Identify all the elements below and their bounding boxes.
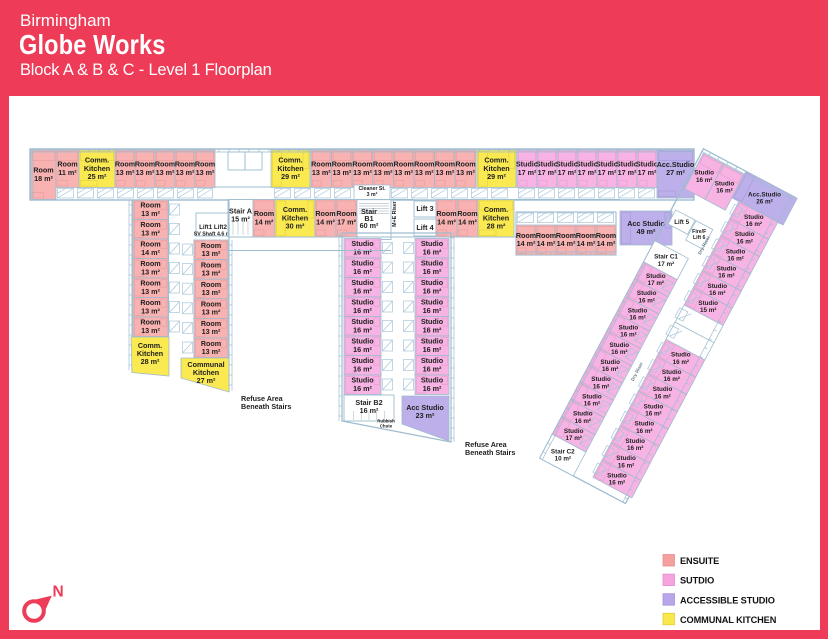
svg-text:Studio16 m²: Studio16 m² (628, 307, 648, 321)
svg-text:Studio16 m²: Studio16 m² (619, 324, 639, 338)
svg-text:Studio16 m²: Studio16 m² (351, 337, 374, 354)
svg-text:Room13 m²: Room13 m² (435, 160, 455, 177)
svg-text:Studio16 m²: Studio16 m² (351, 356, 374, 373)
svg-text:Room13 m²: Room13 m² (135, 160, 155, 177)
svg-text:Studio16 m²: Studio16 m² (616, 455, 636, 469)
svg-text:Room13 m²: Room13 m² (352, 160, 372, 177)
svg-text:Studio17 m²: Studio17 m² (646, 272, 666, 286)
svg-text:Studio16 m²: Studio16 m² (726, 248, 746, 262)
svg-text:Room14 m²: Room14 m² (596, 231, 616, 248)
svg-text:Studio15 m²: Studio15 m² (698, 300, 718, 314)
svg-text:Room13 m²: Room13 m² (201, 300, 221, 317)
svg-text:Room13 m²: Room13 m² (332, 160, 352, 177)
svg-text:Studio16 m²: Studio16 m² (573, 410, 593, 424)
svg-text:Studio16 m²: Studio16 m² (644, 403, 664, 417)
svg-text:Studio16 m²: Studio16 m² (600, 359, 620, 373)
svg-text:Studio16 m²: Studio16 m² (421, 298, 444, 315)
svg-text:Studio16 m²: Studio16 m² (351, 376, 374, 393)
svg-text:Room13 m²: Room13 m² (115, 160, 135, 177)
svg-text:Studio16 m²: Studio16 m² (421, 317, 444, 334)
svg-text:Studio16 m²: Studio16 m² (351, 317, 374, 334)
svg-text:M+E Riser: M+E Riser (392, 201, 398, 227)
svg-text:Room14 m²: Room14 m² (436, 209, 456, 226)
svg-text:Studio16 m²: Studio16 m² (635, 420, 655, 434)
svg-text:Studio16 m²: Studio16 m² (717, 265, 737, 279)
svg-text:Room14 m²: Room14 m² (516, 231, 536, 248)
svg-text:Studio16 m²: Studio16 m² (708, 282, 728, 296)
svg-text:Studio16 m²: Studio16 m² (421, 337, 444, 354)
svg-text:Studio16 m²: Studio16 m² (653, 386, 673, 400)
svg-text:ENSUITE: ENSUITE (680, 556, 719, 566)
svg-text:Lift 5: Lift 5 (674, 219, 689, 226)
svg-text:Refuse AreaBeneath Stairs: Refuse AreaBeneath Stairs (241, 394, 291, 411)
svg-text:Studio16 m²: Studio16 m² (610, 341, 630, 355)
svg-text:Room13 m²: Room13 m² (311, 160, 331, 177)
svg-text:Room14 m²: Room14 m² (254, 209, 274, 226)
svg-text:Studio16 m²: Studio16 m² (591, 376, 611, 390)
svg-text:Lift1 Lift2: Lift1 Lift2 (199, 224, 227, 231)
svg-text:Studio16 m²: Studio16 m² (421, 278, 444, 295)
svg-text:Comm.Kitchen28 m²: Comm.Kitchen28 m² (483, 205, 509, 230)
svg-text:Room13 m²: Room13 m² (140, 298, 160, 315)
svg-text:Room13 m²: Room13 m² (155, 160, 175, 177)
svg-text:Studio16 m²: Studio16 m² (662, 369, 682, 383)
svg-text:Studio16 m²: Studio16 m² (351, 259, 374, 276)
svg-text:Studio16 m²: Studio16 m² (421, 259, 444, 276)
svg-text:RubbishChute: RubbishChute (377, 419, 395, 429)
svg-text:Room13 m²: Room13 m² (140, 259, 160, 276)
svg-text:Room14 m²: Room14 m² (457, 209, 477, 226)
svg-text:Room14 m²: Room14 m² (315, 209, 335, 226)
svg-text:Stair A15 m²: Stair A15 m² (229, 206, 252, 223)
svg-text:Room13 m²: Room13 m² (195, 160, 215, 177)
svg-text:Room13 m²: Room13 m² (140, 318, 160, 335)
svg-text:Studio16 m²: Studio16 m² (351, 298, 374, 315)
svg-text:Comm.Kitchen30 m²: Comm.Kitchen30 m² (282, 205, 308, 230)
svg-text:Comm.Kitchen25 m²: Comm.Kitchen25 m² (84, 156, 110, 181)
svg-text:Studio16 m²: Studio16 m² (607, 472, 627, 486)
svg-text:Comm.Kitchen29 m²: Comm.Kitchen29 m² (483, 156, 509, 181)
svg-text:Room13 m²: Room13 m² (140, 279, 160, 296)
svg-text:Studio16 m²: Studio16 m² (625, 438, 645, 452)
svg-text:Comm.Kitchen28 m²: Comm.Kitchen28 m² (137, 341, 163, 366)
svg-text:Room11 m²: Room11 m² (57, 160, 77, 177)
svg-text:Room13 m²: Room13 m² (140, 220, 160, 237)
svg-text:Room17 m²: Room17 m² (336, 209, 356, 226)
svg-text:Room13 m²: Room13 m² (201, 319, 221, 336)
svg-text:Studio16 m²: Studio16 m² (671, 351, 691, 365)
svg-text:Room13 m²: Room13 m² (140, 201, 160, 218)
svg-text:Room13 m²: Room13 m² (201, 241, 221, 258)
svg-text:Lift 3: Lift 3 (416, 204, 433, 213)
svg-text:Room13 m²: Room13 m² (373, 160, 393, 177)
svg-text:Lift 4: Lift 4 (416, 223, 433, 232)
svg-text:Studio16 m²: Studio16 m² (351, 239, 374, 256)
svg-text:Room18 m²: Room18 m² (33, 166, 53, 183)
svg-text:Room13 m²: Room13 m² (201, 339, 221, 356)
svg-text:Studio16 m²: Studio16 m² (735, 231, 755, 245)
svg-text:Studio16 m²: Studio16 m² (694, 169, 714, 183)
svg-text:Room14 m²: Room14 m² (556, 231, 576, 248)
svg-text:Room14 m²: Room14 m² (536, 231, 556, 248)
svg-text:Studio16 m²: Studio16 m² (421, 239, 444, 256)
svg-text:Room14 m²: Room14 m² (140, 240, 160, 257)
svg-text:Studio16 m²: Studio16 m² (637, 290, 657, 304)
svg-text:Room14 m²: Room14 m² (576, 231, 596, 248)
svg-text:Comm.Kitchen29 m²: Comm.Kitchen29 m² (277, 156, 303, 181)
svg-text:Studio16 m²: Studio16 m² (744, 213, 764, 227)
svg-text:Room13 m²: Room13 m² (201, 260, 221, 277)
svg-text:COMMUNAL KITCHEN: COMMUNAL KITCHEN (680, 615, 777, 625)
svg-text:SUTDIO: SUTDIO (680, 576, 714, 586)
svg-text:Studio17 m²: Studio17 m² (636, 160, 659, 177)
svg-text:Studio16 m²: Studio16 m² (715, 180, 735, 194)
svg-text:Studio16 m²: Studio16 m² (421, 376, 444, 393)
svg-text:SV Shaft 4.6 m²: SV Shaft 4.6 m² (194, 232, 233, 238)
svg-text:Room13 m²: Room13 m² (414, 160, 434, 177)
svg-text:Room13 m²: Room13 m² (455, 160, 475, 177)
svg-text:N: N (53, 584, 64, 601)
svg-text:Studio17 m²: Studio17 m² (564, 428, 584, 442)
svg-text:Room13 m²: Room13 m² (175, 160, 195, 177)
svg-text:ACCESSIBLE STUDIO: ACCESSIBLE STUDIO (680, 595, 775, 605)
svg-text:Studio16 m²: Studio16 m² (582, 393, 602, 407)
svg-text:Room13 m²: Room13 m² (201, 280, 221, 297)
svg-text:Room13 m²: Room13 m² (394, 160, 414, 177)
svg-text:Studio16 m²: Studio16 m² (351, 278, 374, 295)
svg-text:Refuse AreaBeneath Stairs: Refuse AreaBeneath Stairs (465, 440, 515, 457)
svg-text:Studio16 m²: Studio16 m² (421, 356, 444, 373)
